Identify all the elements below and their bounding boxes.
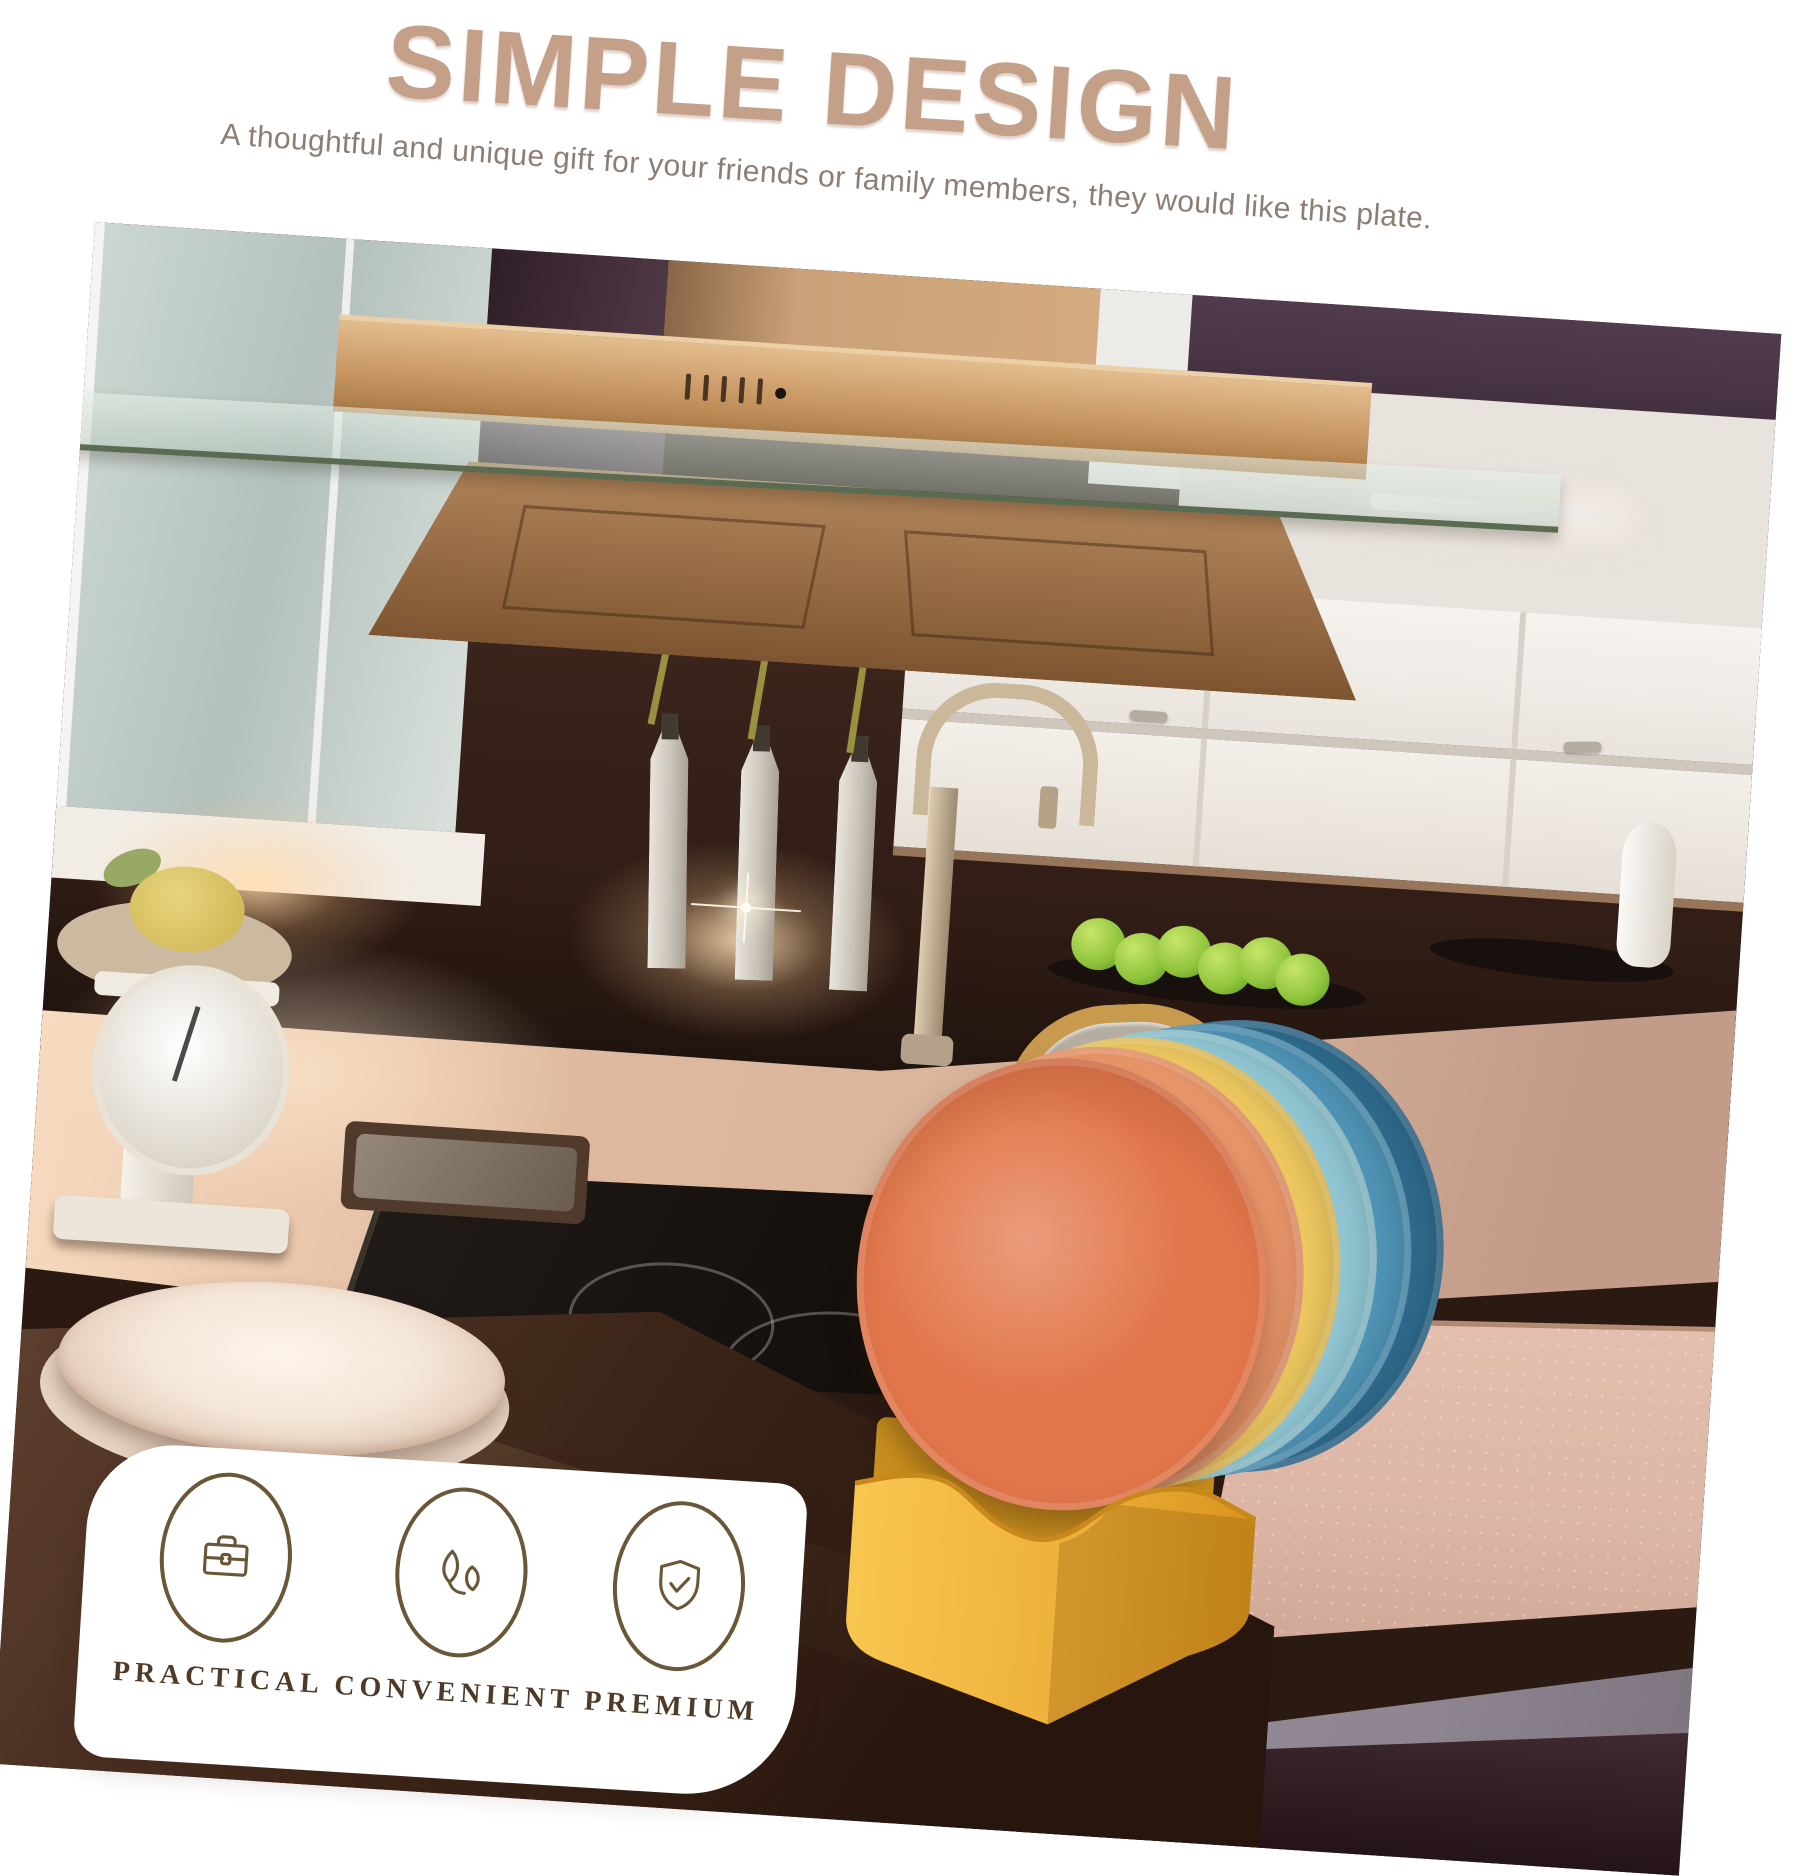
feature-badges: PRACTICAL CONVENIENT PREMIUM: [72, 1440, 808, 1800]
sink-basin: [353, 1133, 578, 1212]
badge-label: CONVENIENT: [333, 1670, 574, 1717]
hood-controls: [684, 369, 876, 418]
cabinet-door-gap: [1193, 738, 1207, 866]
cabinet-frame: [56, 222, 105, 806]
badge-premium: PREMIUM: [583, 1496, 772, 1729]
leaves-icon: [427, 1537, 497, 1607]
badge-convenient: CONVENIENT: [333, 1480, 586, 1717]
cabinet-door-gap: [1511, 612, 1526, 749]
faucet-tip: [1038, 786, 1059, 829]
white-vase: [1615, 821, 1678, 969]
frosted-cabinet-left: [56, 222, 494, 832]
badge-circle: [608, 1497, 750, 1675]
badge-circle: [390, 1483, 532, 1661]
hood-filter: [502, 505, 826, 629]
cabinet-door-gap: [1502, 759, 1516, 887]
yellow-plate-holder: [827, 1411, 1277, 1749]
shield-check-icon: [644, 1551, 714, 1621]
badge-circle: [155, 1469, 297, 1647]
cabinet-handle: [1563, 742, 1601, 752]
hood-filter: [904, 530, 1214, 656]
badge-practical: PRACTICAL: [112, 1466, 337, 1701]
badge-label: PRACTICAL: [112, 1656, 325, 1701]
briefcase-icon: [191, 1523, 261, 1593]
scale-base: [53, 1195, 290, 1254]
colorful-plate-set: [814, 1015, 1363, 1806]
kitchen-scale: [21, 805, 351, 1284]
badge-label: PREMIUM: [583, 1685, 760, 1728]
sink: [340, 1121, 590, 1225]
